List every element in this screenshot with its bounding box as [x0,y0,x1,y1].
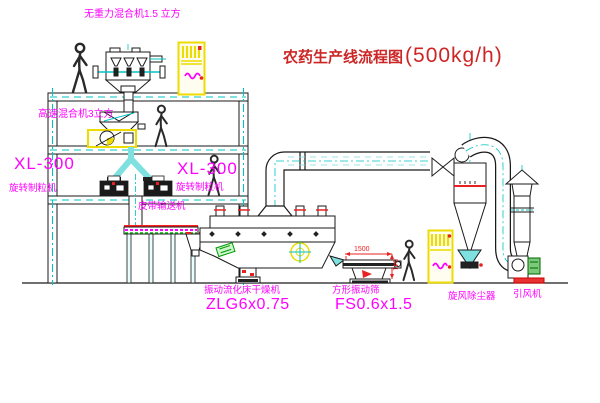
label-granulator-mid-model: XL-300 [177,160,238,177]
exhaust-duct [258,152,430,216]
fan-base [514,278,544,283]
label-granulator-mid-name: 旋转制粒机 [176,183,224,193]
label-sieve-model: FS0.6x1.5 [335,297,412,313]
dim-sieve-length: 1500 [354,246,370,253]
label-fan: 引风机 [513,290,542,300]
label-granulator-left-name: 旋转制粒机 [9,184,57,194]
fan-motor [528,258,540,274]
dim-sieve-height: 541 [391,259,398,271]
high-speed-mixer [88,100,145,147]
diagram-title: 农药生产线流程图 (500kg/h) [283,44,503,68]
granulator-left [100,176,128,196]
discharge-arrow [330,256,344,266]
label-granulator-left-model: XL-300 [14,155,75,172]
label-sieve-name: 方形振动筛 [332,286,380,296]
induced-draft-fan [508,256,544,283]
label-dryer-model: ZLG6x0.75 [206,297,290,313]
label-dryer-name: 振动流化床干燥机 [204,286,280,296]
title-text: 农药生产线流程图 [283,46,403,67]
label-top-mixer: 无重力混合机1.5 立方 [84,10,181,20]
worker-sieve [403,241,414,281]
control-cabinet-top [179,43,205,95]
label-highspeed-mixer: 高速混合机3立方 [38,110,114,120]
label-cyclone: 旋风除尘器 [448,292,496,302]
title-capacity: (500kg/h) [405,44,503,68]
worker-roof [73,44,87,92]
label-belt-conveyor: 皮带输送机 [138,202,186,212]
inlet-valve [432,158,443,176]
fluid-bed-dryer [200,206,344,283]
worker-floor2 [156,106,167,146]
control-cabinet-right [429,231,453,283]
indicator-light [198,46,202,50]
process-flow-diagram: 农药生产线流程图 (500kg/h) 无重力混合机1.5 立方 高速混合机3立方… [0,0,600,403]
